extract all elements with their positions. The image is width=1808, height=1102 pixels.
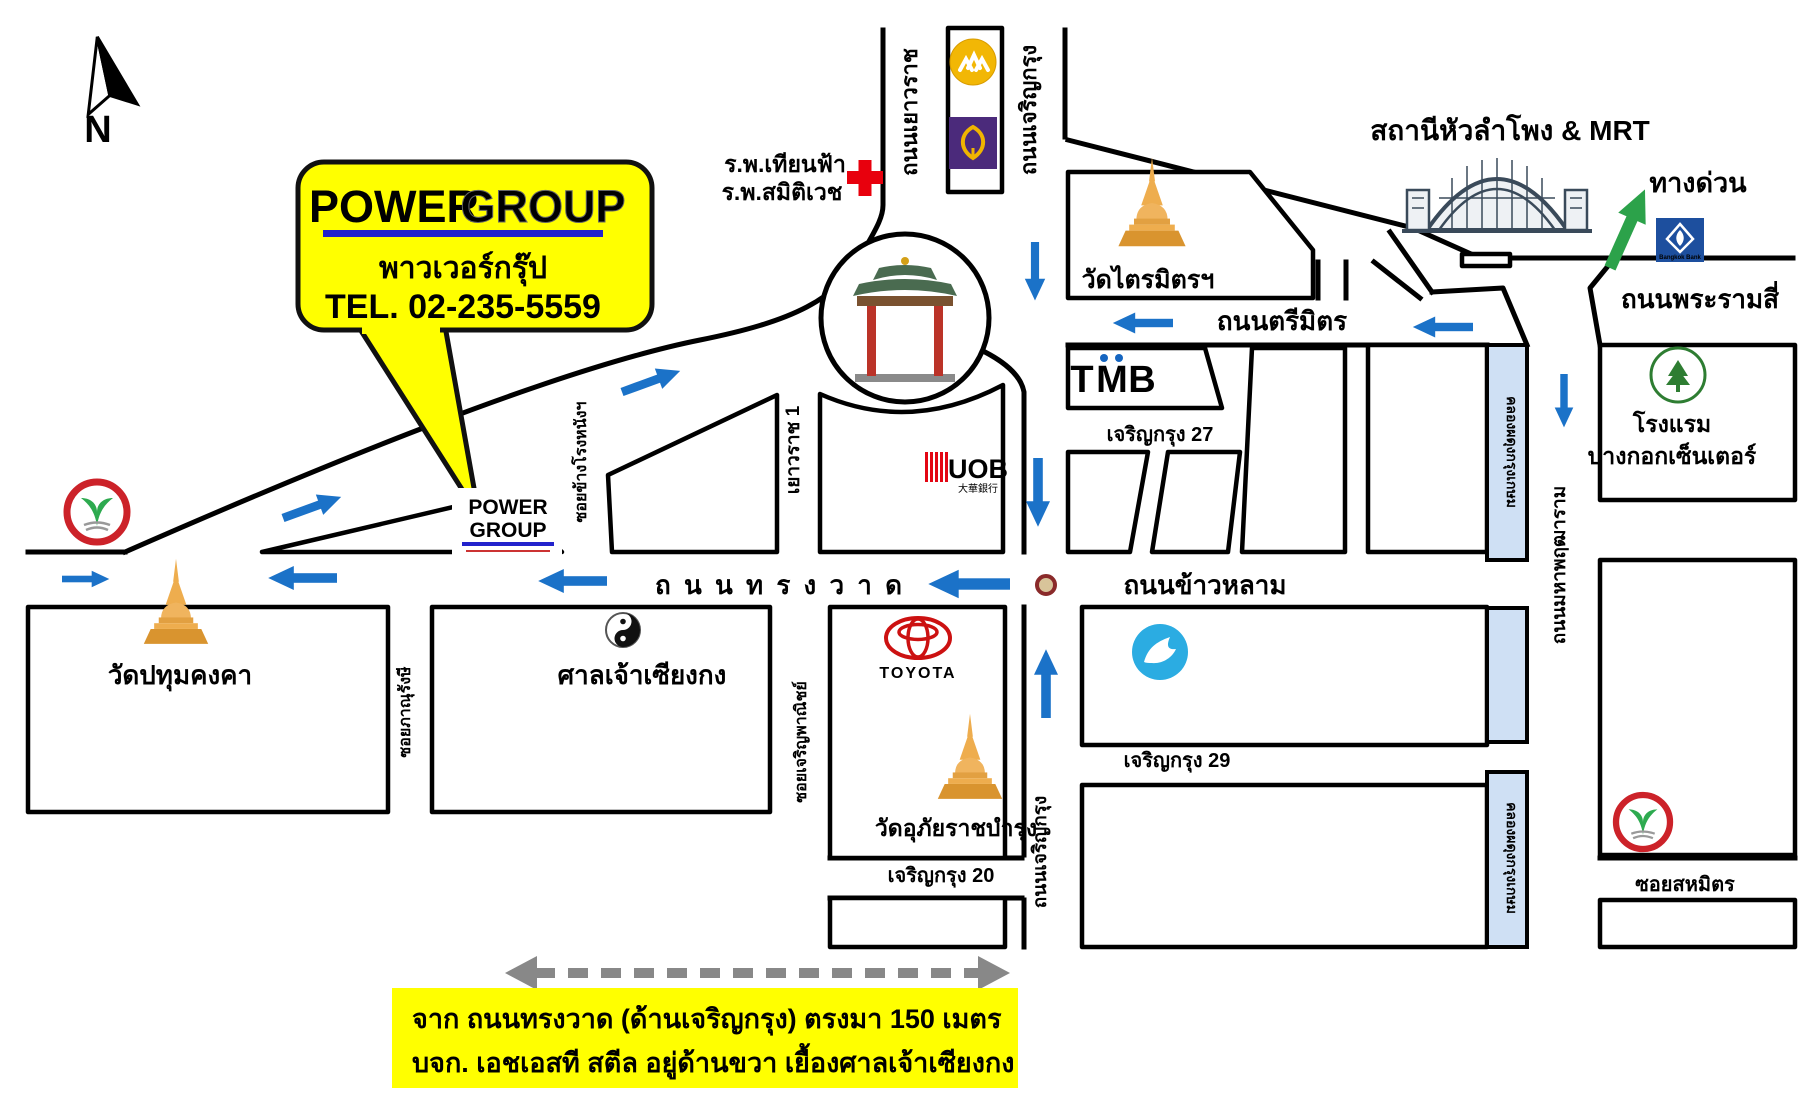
road-label-soi-charoen-phanich: ซอยเจริญพาณิชย์ [791, 681, 811, 803]
power-group-callout: POWER GROUP พาวเวอร์กรุ๊ป TEL. 02-235-55… [298, 162, 652, 516]
callout-group: GROUP [460, 181, 625, 232]
road-junction-lower-west [1432, 288, 1527, 345]
canal-segment-2 [1487, 608, 1527, 742]
road-label-ck27: เจริญกรุง 27 [1107, 424, 1214, 447]
compass: N [73, 32, 137, 151]
arrow-west-songwat-2 [538, 569, 607, 593]
road-label-songwat: ถ น น ท ร ง ว า ด [655, 570, 905, 600]
bangkok-bank-icon: Bangkok Bank [1656, 218, 1704, 262]
site-underline-red [466, 550, 550, 552]
krungthai-bank-icon [1132, 624, 1188, 680]
kasikorn-bank-icon [67, 482, 127, 542]
road-label-khao-lam: ถนนข้าวหลาม [1123, 570, 1286, 600]
hospital-label-2: ร.พ.สมิติเวช [722, 179, 843, 205]
kasikorn-bank-icon-2 [1616, 795, 1670, 849]
arrow-west-rama4 [1413, 317, 1473, 338]
chinatown-gate-circle [821, 234, 989, 402]
tmb-letter-t: T [1070, 359, 1093, 401]
road-junction-edge [1390, 232, 1432, 292]
note-line-1: จาก ถนนทรงวาด (ด้านเจริญกรุง) ตรงมา 150 … [412, 1004, 1002, 1036]
block-mid [1242, 348, 1345, 552]
toyota-logo: TOYOTA [879, 618, 956, 682]
arrow-northeast-1 [279, 487, 345, 528]
wat-pathum-label: วัดปทุมคงคา [108, 660, 252, 692]
hospital-cross-icon [847, 160, 883, 196]
hotel-label-1: โรงแรม [1632, 410, 1711, 437]
arrow-east-songwat [62, 571, 109, 588]
road-label-sahamit: ซอยสหมิตร [1635, 874, 1735, 896]
shrine-label: ศาลเจ้าเซียงกง [558, 660, 727, 690]
uob-chinese-label: 大華銀行 [958, 482, 998, 495]
callout-pointer [358, 326, 479, 516]
block-mid-low [608, 395, 777, 552]
note-line-2: บจก. เอชเอสที สตีล อยู่ด้านขวา เยื้องศาล… [412, 1042, 1014, 1080]
callout-tel: TEL. 02-235-5559 [325, 288, 601, 326]
road-label-trimit: ถนนตรีมิตร [1217, 306, 1347, 336]
krungsri-bank-icon [950, 39, 996, 85]
arrow-west-songwat-1 [268, 566, 337, 590]
arrow-south-charoenkrung-2 [1026, 458, 1050, 527]
road-label-soi-khang-rong-nang: ซอยข้างโรงหนังฯ [570, 402, 590, 523]
road-label-rama4: ถนนพระรามสี่ [1621, 280, 1779, 314]
wat-traimit-label: วัดไตรมิตรฯ [1082, 264, 1215, 294]
canal-label-2: คลองผดุงกรุงเกษม [1503, 802, 1520, 914]
callout-power: POWER [309, 181, 479, 232]
hotel-label-2: บางกอกเซ็นเตอร์ [1588, 441, 1757, 469]
callout-underline [323, 230, 603, 237]
distance-dashed-arrow [505, 956, 1010, 990]
block-below-ck29 [1082, 785, 1487, 947]
yin-yang-icon [606, 613, 640, 647]
tmb-letter-m: M [1096, 359, 1128, 401]
road-label-ck20: เจริญกรุง 20 [888, 865, 995, 888]
canal-label-1: คลองผดุงกรุงเกษม [1503, 396, 1520, 508]
road-label-ck29: เจริญกรุง 29 [1124, 750, 1231, 773]
site-label: POWER GROUP [452, 488, 562, 558]
toyota-label: TOYOTA [879, 665, 956, 682]
power-group-location-map: Bangkok Bank T M B UOB 大華銀行 TOYOTA [0, 0, 1808, 1102]
arrow-north-charoenkrung [1034, 649, 1058, 718]
road-label-soi-phanurangsi: ซอยภาณุรังษี [395, 666, 415, 758]
direction-note: จาก ถนนทรงวาด (ด้านเจริญกรุง) ตรงมา 150 … [392, 988, 1018, 1088]
block-right-bottom [1600, 900, 1795, 947]
site-power: POWER [468, 496, 547, 519]
site-group: GROUP [469, 519, 546, 542]
block-canal-west [1368, 345, 1487, 552]
tmb-letter-b: B [1128, 359, 1155, 401]
arrow-west-songwat-3 [928, 570, 1010, 599]
wat-pathum-stupa-icon [144, 559, 208, 644]
rama4-median [1462, 254, 1510, 266]
block-shrine [432, 607, 770, 812]
station-label: สถานีหัวลำโพง & MRT [1370, 113, 1650, 146]
callout-thai-name: พาวเวอร์กรุ๊ป [379, 251, 547, 287]
arrow-northeast-2 [618, 361, 684, 402]
tmb-bank-logo: T M B [1070, 354, 1155, 401]
road-junction-lower-east [1590, 266, 1608, 345]
block-below-ck20 [830, 898, 1005, 947]
bangkok-bank-label: Bangkok Bank [1659, 255, 1701, 261]
scb-bank-icon [949, 117, 997, 169]
block-ck27-a [1068, 452, 1148, 552]
road-junction-stubs [1318, 262, 1420, 298]
hospital-label-1: ร.พ.เทียนฟ้า [724, 151, 846, 177]
arrow-south-charoenkrung-1 [1025, 242, 1045, 300]
uob-label: UOB [948, 454, 1008, 484]
block-ck27-b [1152, 452, 1240, 552]
arrow-south-mahaphruettharam [1555, 374, 1574, 427]
expressway-label: ทางด่วน [1649, 168, 1747, 198]
block-ktb [1082, 607, 1487, 745]
road-label-charoenkrung-bottom: ถนนเจริญกรุง [1030, 796, 1052, 909]
road-label-maha-phruettharam: ถนนมหาพฤฒาราม [1549, 486, 1570, 644]
road-label-yaowarat: ถนนเยาวราช [897, 48, 922, 176]
compass-north-label: N [84, 109, 111, 151]
wat-uphai-label: วัดอุภัยราชบำรุง [875, 815, 1037, 843]
road-label-yaowarat1: เยาวราช 1 [783, 405, 804, 494]
hua-lamphong-station-icon [1402, 158, 1592, 231]
site-underline-blue [462, 542, 554, 546]
block-wat-pathum [28, 607, 388, 812]
road-label-charoenkrung-top: ถนนเจริญกรุง [1016, 45, 1043, 175]
map-canvas: Bangkok Bank T M B UOB 大華銀行 TOYOTA [0, 0, 1808, 1102]
bangkok-centre-hotel-icon [1651, 348, 1705, 402]
arrow-west-trimit [1113, 313, 1173, 334]
junction-marker [1037, 576, 1055, 594]
